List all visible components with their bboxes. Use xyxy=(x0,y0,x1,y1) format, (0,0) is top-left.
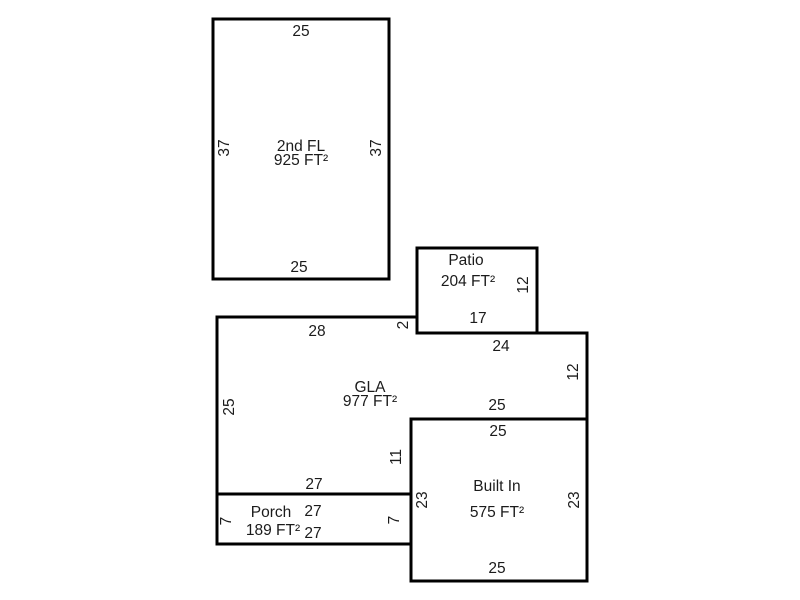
built-in-area-label: 575 FT² xyxy=(470,504,524,521)
porch-dim-top: 27 xyxy=(304,503,321,520)
gla-dim-bottom: 27 xyxy=(305,476,322,493)
second-floor-dim-right: 37 xyxy=(368,139,385,156)
porch-dim-left: 7 xyxy=(218,517,235,526)
gla-dim-top: 28 xyxy=(308,323,325,340)
porch-area-label: 189 FT² xyxy=(246,522,300,539)
sketch-canvas: 25 2nd FL 925 FT² 25 37 37 Patio 204 FT²… xyxy=(0,0,800,600)
gla-outline xyxy=(217,317,587,494)
patio-dim-right: 12 xyxy=(515,276,532,293)
porch-dim-bottom: 27 xyxy=(304,525,321,542)
gla-dim-inner-right: 11 xyxy=(388,449,405,465)
gla-dim-step-right: 2 xyxy=(395,321,412,330)
built-in-outline xyxy=(411,419,587,581)
gla-dim-above-built-in: 25 xyxy=(488,397,505,414)
patio-dim-bottom: 17 xyxy=(469,310,486,327)
gla-dim-left: 25 xyxy=(221,398,238,415)
gla-dim-right: 12 xyxy=(565,363,582,380)
floor-plan-sketch: 25 2nd FL 925 FT² 25 37 37 Patio 204 FT²… xyxy=(0,0,800,600)
second-floor-dim-left: 37 xyxy=(216,139,233,156)
gla-area-label: 977 FT² xyxy=(343,393,397,410)
second-floor-dim-top: 25 xyxy=(292,23,309,40)
patio-area-label: 204 FT² xyxy=(441,273,495,290)
porch-dim-right: 7 xyxy=(386,516,403,525)
built-in-label: Built In xyxy=(473,478,520,495)
built-in-dim-top: 25 xyxy=(489,423,506,440)
built-in-dim-left: 23 xyxy=(414,491,431,508)
second-floor-area-label: 925 FT² xyxy=(274,152,328,169)
patio-label: Patio xyxy=(448,252,483,269)
built-in-dim-bottom: 25 xyxy=(488,560,505,577)
built-in-dim-right: 23 xyxy=(566,491,583,508)
second-floor-dim-bottom: 25 xyxy=(290,259,307,276)
gla-dim-upper-right: 24 xyxy=(492,338,510,355)
porch-label: Porch xyxy=(251,504,292,521)
